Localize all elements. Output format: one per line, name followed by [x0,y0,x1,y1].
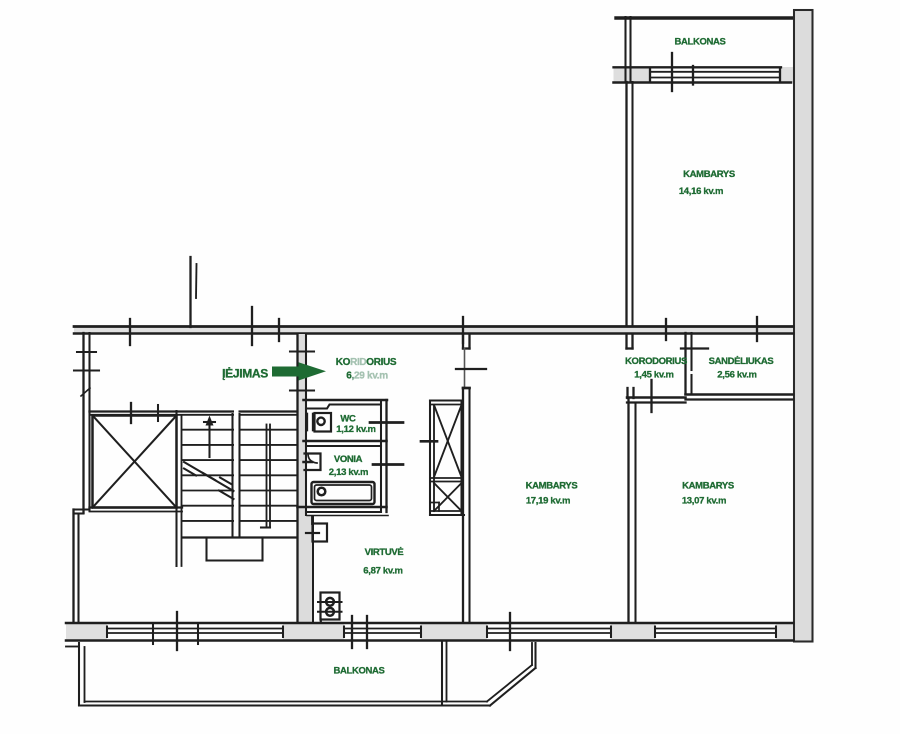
svg-text:BALKONAS: BALKONAS [333,666,384,677]
svg-text:KAMBARYS: KAMBARYS [526,481,578,492]
svg-text:1,45 kv.m: 1,45 kv.m [634,370,673,381]
svg-text:2,56 kv.m: 2,56 kv.m [717,370,756,381]
svg-text:VIRTUVĖ: VIRTUVĖ [365,547,404,558]
svg-text:6,87 kv.m: 6,87 kv.m [363,566,402,577]
svg-text:BALKONAS: BALKONAS [674,37,725,48]
svg-text:14,16 kv.m: 14,16 kv.m [679,186,723,197]
svg-text:VONIA: VONIA [334,454,363,465]
svg-text:WC: WC [340,414,356,425]
svg-text:13,07 kv.m: 13,07 kv.m [682,496,726,507]
svg-text:17,19 kv.m: 17,19 kv.m [526,496,570,507]
svg-text:KORODORIUS: KORODORIUS [625,356,687,367]
svg-text:KORIDORIUS: KORIDORIUS [336,357,397,368]
svg-text:KAMBARYS: KAMBARYS [683,169,735,180]
svg-text:6,29 kv.m: 6,29 kv.m [346,371,388,382]
svg-text:KAMBARYS: KAMBARYS [682,481,734,492]
svg-text:SANDĖLIUKAS: SANDĖLIUKAS [709,356,774,367]
svg-text:1,12 kv.m: 1,12 kv.m [336,424,375,435]
svg-text:2,13 kv.m: 2,13 kv.m [329,467,368,478]
svg-text:ĮĖJIMAS: ĮĖJIMAS [222,366,268,381]
